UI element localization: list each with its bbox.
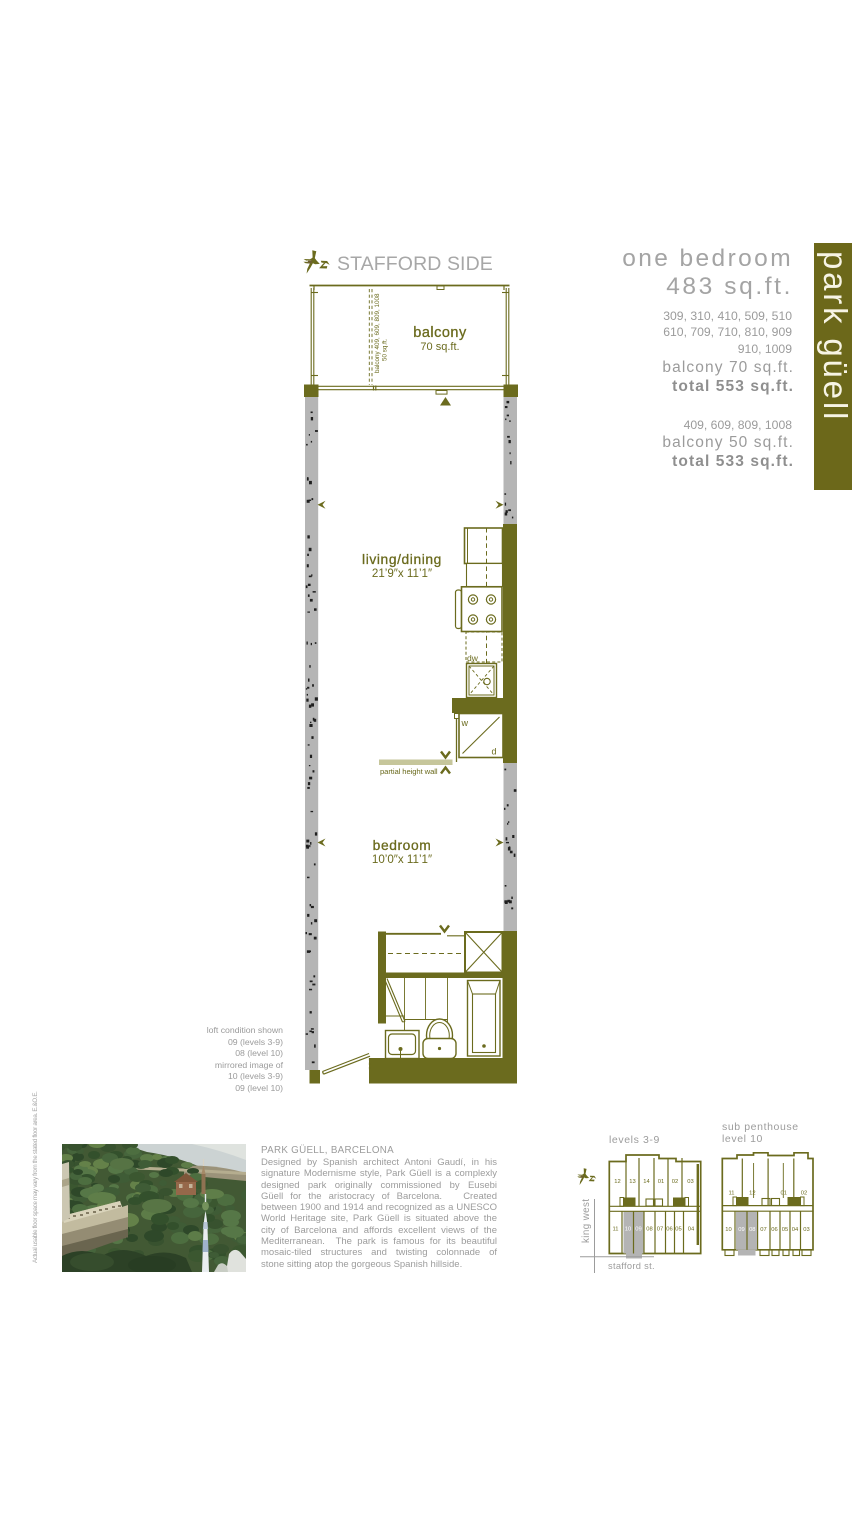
svg-text:w: w <box>461 718 469 728</box>
svg-text:04: 04 <box>688 1227 695 1233</box>
svg-text:11: 11 <box>612 1227 618 1233</box>
svg-text:06: 06 <box>666 1227 672 1233</box>
svg-text:12: 12 <box>749 1191 755 1197</box>
svg-text:living/dining: living/dining <box>362 552 442 567</box>
svg-text:dw: dw <box>467 653 479 663</box>
svg-text:10: 10 <box>725 1227 731 1233</box>
svg-text:01: 01 <box>780 1191 786 1197</box>
svg-text:balcony 409, 609, 809, 1008: balcony 409, 609, 809, 1008 <box>374 293 381 373</box>
svg-text:01: 01 <box>658 1179 664 1185</box>
svg-text:partial height wall: partial height wall <box>380 767 438 776</box>
svg-text:09: 09 <box>635 1227 641 1233</box>
svg-text:14: 14 <box>643 1179 650 1185</box>
svg-text:03: 03 <box>687 1179 693 1185</box>
svg-text:balcony: balcony <box>413 325 467 341</box>
svg-text:05: 05 <box>675 1227 681 1233</box>
svg-text:10: 10 <box>625 1227 631 1233</box>
svg-text:70 sq.ft.: 70 sq.ft. <box>420 341 459 353</box>
svg-text:11: 11 <box>728 1191 734 1197</box>
svg-text:13: 13 <box>629 1179 635 1185</box>
svg-text:10’0″x 11’1″: 10’0″x 11’1″ <box>372 853 432 866</box>
svg-text:09: 09 <box>738 1227 744 1233</box>
svg-text:03: 03 <box>803 1227 809 1233</box>
svg-text:02: 02 <box>672 1179 678 1185</box>
svg-text:08: 08 <box>749 1227 755 1233</box>
svg-text:50 sq.ft.: 50 sq.ft. <box>382 338 389 361</box>
svg-text:07: 07 <box>760 1227 766 1233</box>
svg-text:07: 07 <box>657 1227 663 1233</box>
svg-text:04: 04 <box>792 1227 799 1233</box>
svg-text:bedroom: bedroom <box>373 838 432 853</box>
svg-text:21’9″x 11’1″: 21’9″x 11’1″ <box>372 567 432 580</box>
svg-text:05: 05 <box>782 1227 788 1233</box>
svg-text:02: 02 <box>801 1191 807 1197</box>
svg-text:12: 12 <box>614 1179 620 1185</box>
svg-text:06: 06 <box>771 1227 777 1233</box>
svg-text:d: d <box>492 747 497 757</box>
svg-text:08: 08 <box>646 1227 652 1233</box>
